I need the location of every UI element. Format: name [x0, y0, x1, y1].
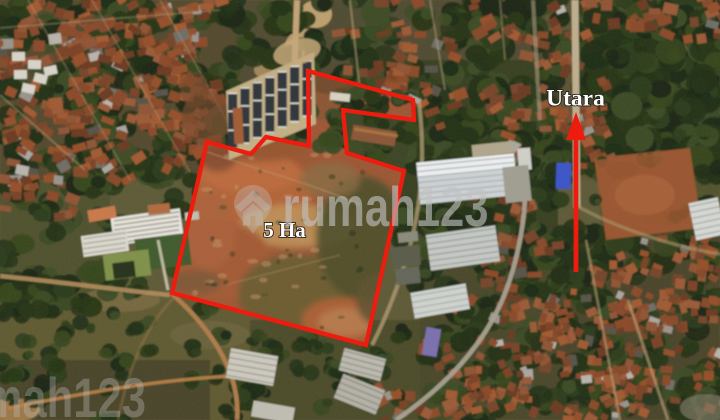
svg-text:Utara: Utara — [546, 86, 605, 112]
svg-text:rumah123: rumah123 — [0, 366, 146, 420]
svg-text:rumah123: rumah123 — [283, 175, 489, 238]
